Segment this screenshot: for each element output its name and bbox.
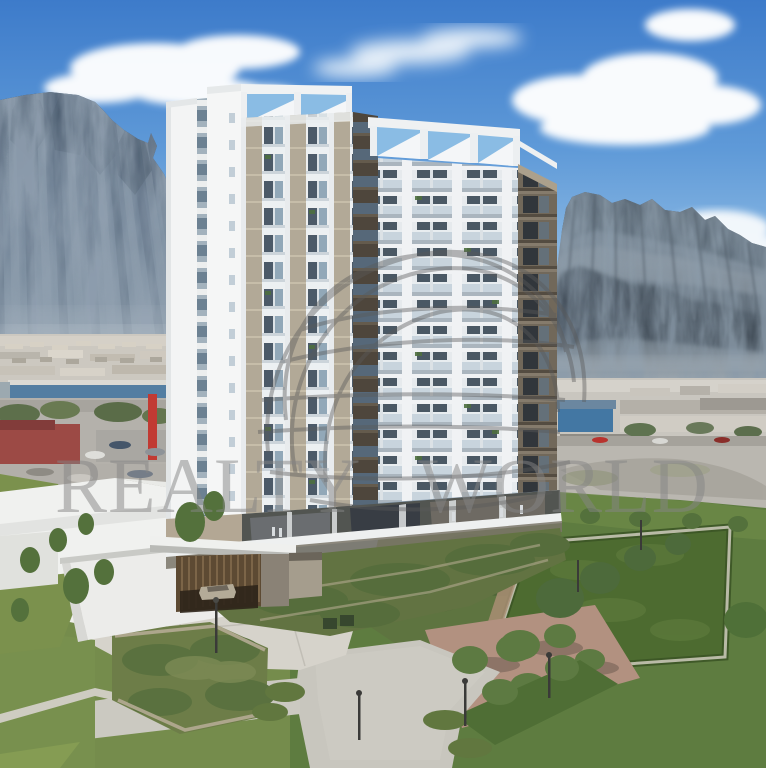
- svg-text:REALTY: REALTY: [55, 442, 361, 529]
- svg-text:WORLD: WORLD: [418, 442, 709, 529]
